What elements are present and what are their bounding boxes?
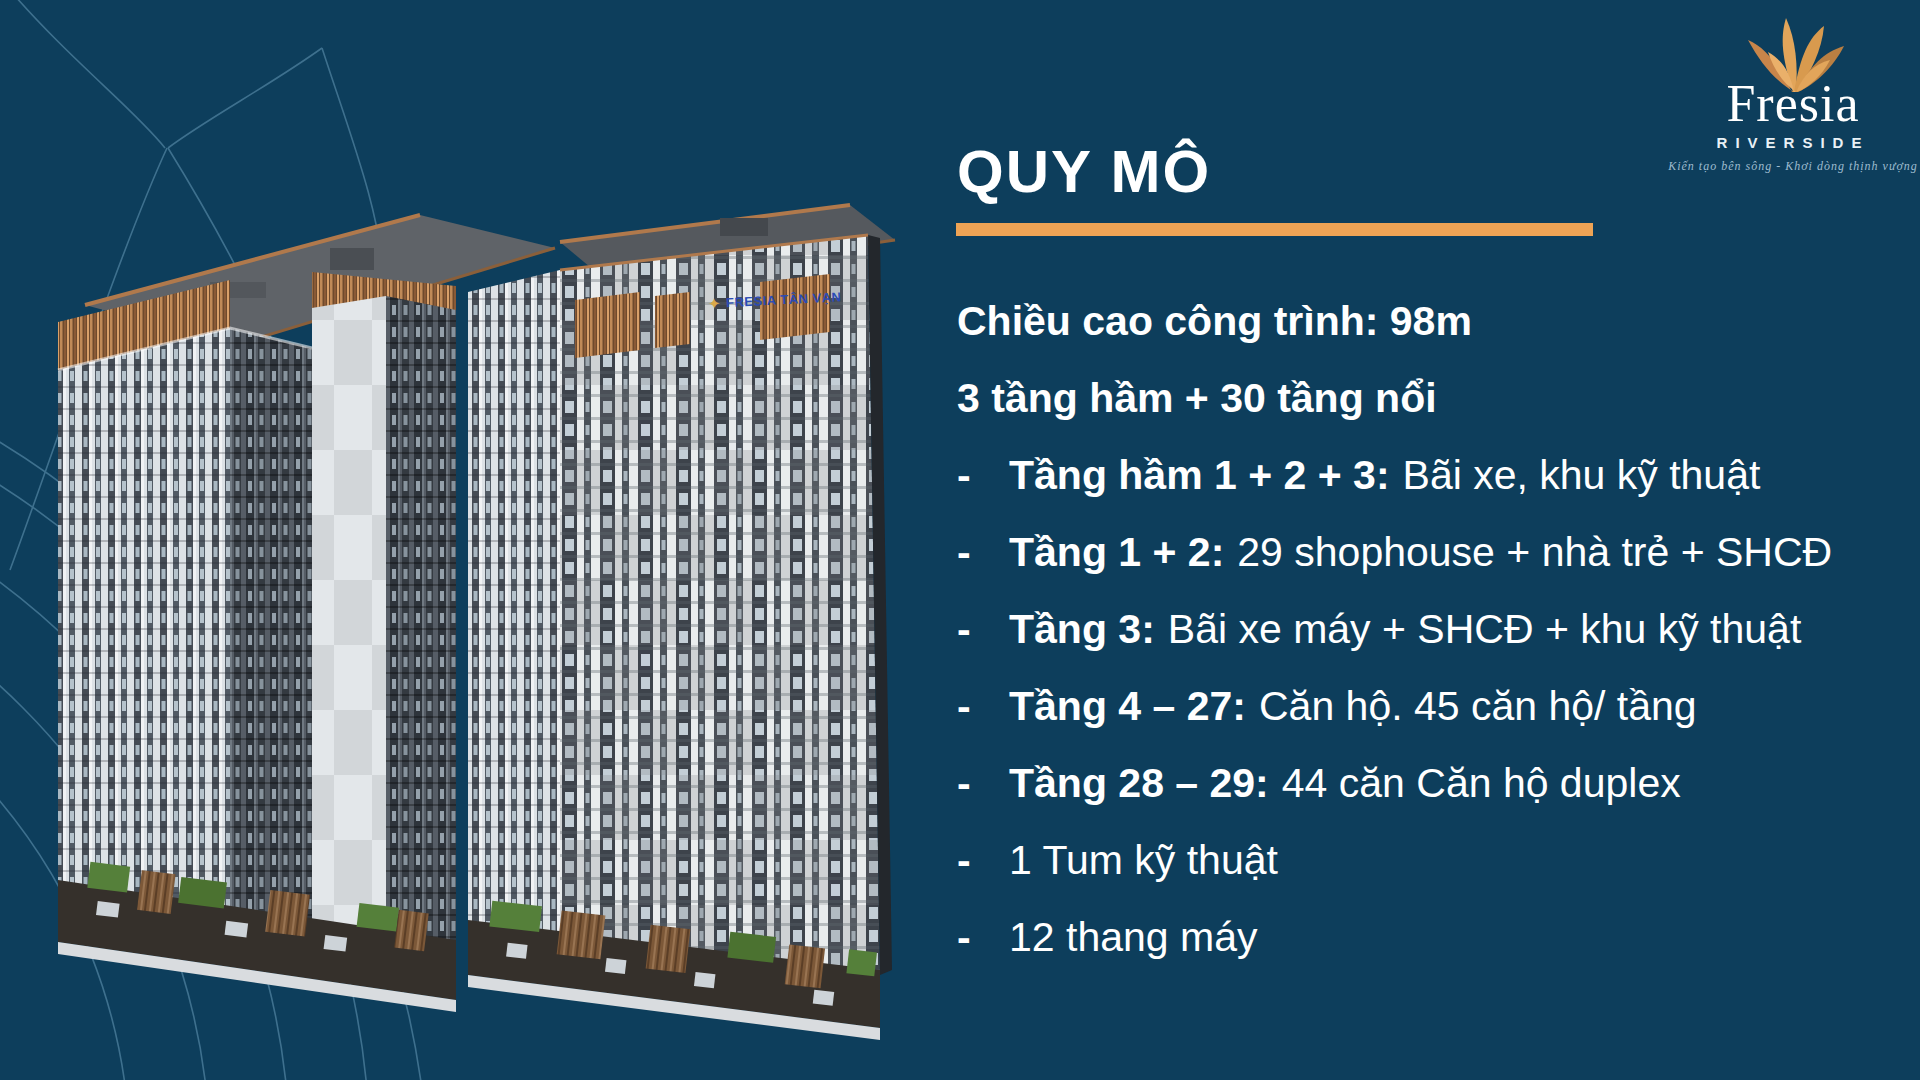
spec-list: Chiều cao công trình: 98m 3 tầng hầm + 3… <box>957 283 1832 976</box>
tower-middle <box>312 272 456 955</box>
svg-text:✦: ✦ <box>708 295 721 313</box>
title-underline <box>956 223 1593 236</box>
tower-left <box>58 280 312 942</box>
spec-row-floor-4-27: - Tầng 4 – 27: Căn hộ. 45 căn hộ/ tầng <box>957 668 1832 745</box>
spec-row-elevators: - 12 thang máy <box>957 899 1832 976</box>
bullet-dash: - <box>957 914 1009 961</box>
spec-row-basement: - Tầng hầm 1 + 2 + 3: Bãi xe, khu kỹ thu… <box>957 437 1832 514</box>
page-title: QUY MÔ <box>957 142 1211 202</box>
bullet-dash: - <box>957 606 1009 653</box>
bullet-dash: - <box>957 452 1009 499</box>
tower-right: ✦ FRESIA TÂN VẠN <box>468 235 892 975</box>
brand-name: Fresia <box>1668 78 1918 130</box>
spec-row-floor-3: - Tầng 3: Bãi xe máy + SHCĐ + khu kỹ thu… <box>957 591 1832 668</box>
brand-tagline: Kiến tạo bên sông - Khơi dòng thịnh vượn… <box>1668 159 1918 174</box>
spec-row-floor-28-29: - Tầng 28 – 29: 44 căn Căn hộ duplex <box>957 745 1832 822</box>
logo: Fresia RIVERSIDE Kiến tạo bên sông - Khơ… <box>1668 14 1918 174</box>
bullet-dash: - <box>957 683 1009 730</box>
bullet-dash: - <box>957 529 1009 576</box>
spec-row-tum: - 1 Tum kỹ thuật <box>957 822 1832 899</box>
spec-row-floor-1-2: - Tầng 1 + 2: 29 shophouse + nhà trẻ + S… <box>957 514 1832 591</box>
spec-intro-floors: 3 tầng hầm + 30 tầng nổi <box>957 360 1832 437</box>
brand-subname: RIVERSIDE <box>1668 134 1918 151</box>
spec-intro-height: Chiều cao công trình: 98m <box>957 283 1832 360</box>
bullet-dash: - <box>957 837 1009 884</box>
building-render: ✦ FRESIA TÂN VẠN <box>30 190 900 1060</box>
slide: ✦ FRESIA TÂN VẠN <box>0 0 1920 1080</box>
bullet-dash: - <box>957 760 1009 807</box>
